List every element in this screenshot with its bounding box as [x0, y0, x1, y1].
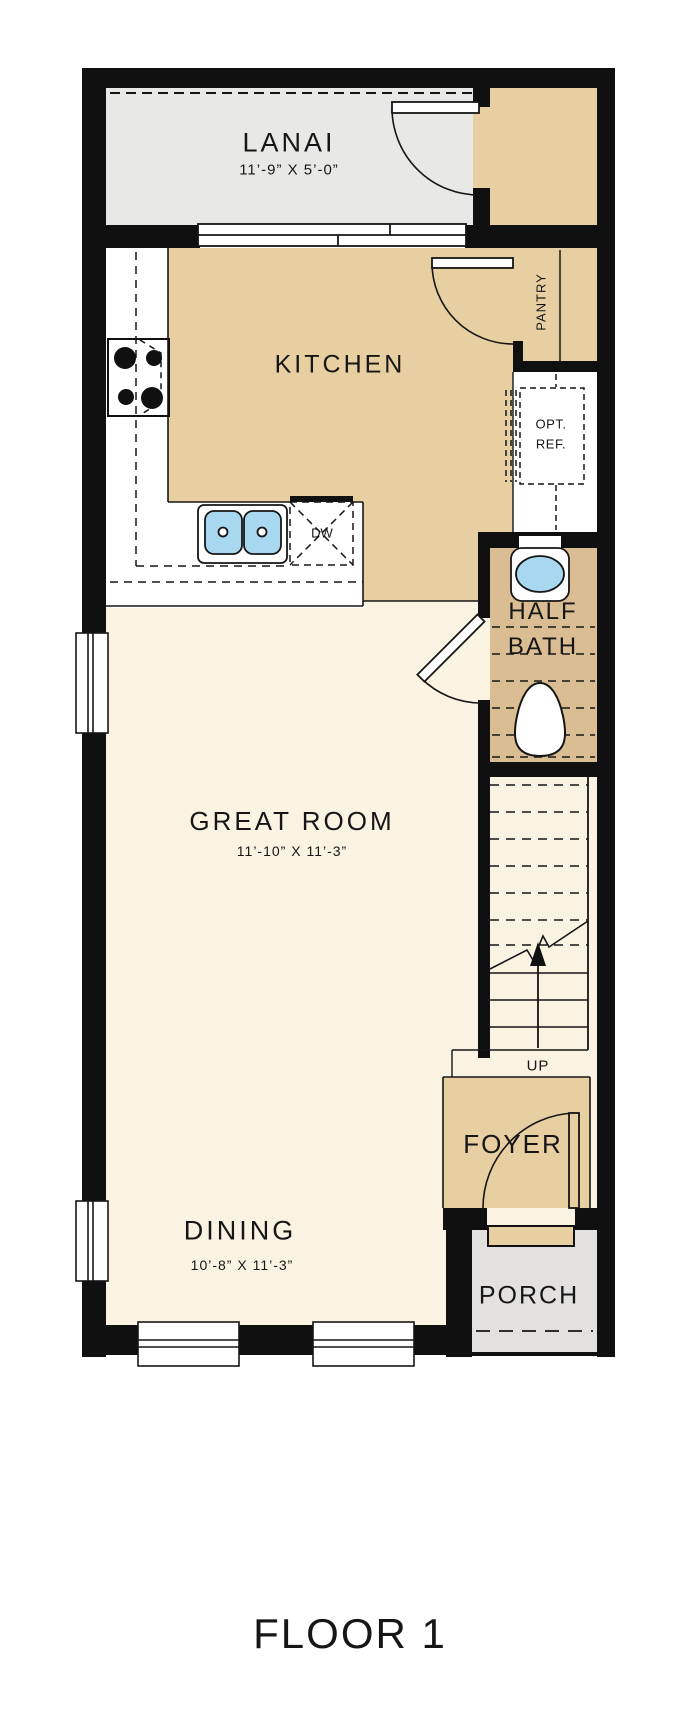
wall-left	[82, 68, 106, 1357]
foyer-label: FOYER	[463, 1131, 563, 1157]
stove-icon	[107, 338, 170, 417]
room-pantry	[513, 248, 597, 372]
page-title: FLOOR 1	[253, 1613, 447, 1655]
dining-label: DINING	[184, 1218, 297, 1245]
half-bath-label-line2: BATH	[508, 635, 578, 659]
wall-right	[597, 68, 615, 1357]
floor-plan: LANAI 11’-9” X 5’-0” KITCHEN PANTRY OPT.…	[0, 0, 689, 1725]
wall-stairs-west	[478, 700, 490, 1058]
lanai-dims: 11’-9” X 5’-0”	[239, 163, 339, 178]
wall-halfbath-west	[478, 532, 490, 618]
wall-halfbath-north	[478, 532, 597, 548]
wall-lanai-door-stub-bottom	[473, 188, 490, 225]
great-room-label: GREAT ROOM	[189, 808, 394, 834]
wall-foyer-south-right	[575, 1208, 615, 1230]
wall-top	[82, 68, 615, 88]
wall-porch-west	[446, 1230, 472, 1357]
pantry-label: PANTRY	[535, 273, 548, 331]
opt-ref-label-line2: REF.	[536, 438, 566, 451]
wall-foyer-south-left	[443, 1208, 487, 1230]
porch-bottom-edge	[472, 1352, 597, 1356]
opt-ref-label-line1: OPT.	[536, 418, 567, 431]
entry-threshold	[487, 1225, 575, 1247]
wall-stairs-north	[478, 762, 597, 777]
sliding-door	[198, 224, 466, 246]
lanai-label: LANAI	[242, 130, 335, 157]
porch-label: PORCH	[479, 1284, 579, 1309]
wall-lanai-door-stub-top	[473, 88, 490, 107]
entry-vestibule	[473, 88, 597, 248]
great-room-dims: 11’-10” X 11’-3”	[237, 844, 347, 858]
wall-lanai-bottom-right	[465, 225, 597, 248]
stairwell	[490, 777, 597, 1077]
dining-dims: 10’-8” X 11’-3”	[191, 1258, 294, 1272]
wall-pantry-south	[513, 361, 597, 372]
ref-alcove	[513, 372, 597, 532]
kitchen-counter-bottom	[106, 502, 363, 608]
kitchen-label: KITCHEN	[275, 353, 406, 378]
up-label: UP	[527, 1059, 550, 1074]
half-bath-label-line1: HALF	[508, 600, 577, 624]
wall-bottom	[82, 1325, 446, 1355]
wall-lanai-bottom-left	[82, 225, 200, 248]
dw-label: DW	[311, 527, 333, 540]
